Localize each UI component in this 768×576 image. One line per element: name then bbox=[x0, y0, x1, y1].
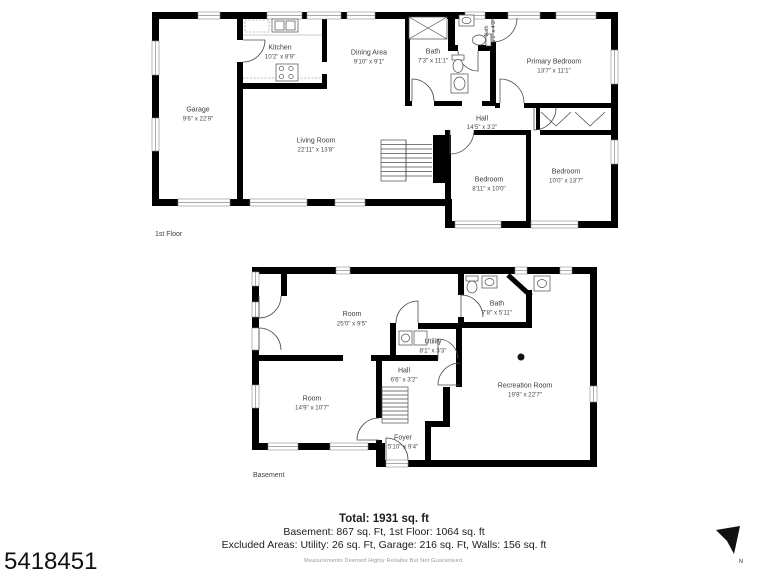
room-dims-hall: 14'5" x 3'2" bbox=[467, 124, 498, 131]
room-label-small-bath: Bath bbox=[484, 26, 490, 37]
room-dims-basement-room2: 14'9" x 10'7" bbox=[295, 405, 329, 412]
support-column bbox=[518, 354, 525, 361]
basement-label: Basement bbox=[253, 472, 285, 479]
first-floor-plan: Kitchen 10'2" x 8'9" Dining Area 9'10" x… bbox=[152, 12, 618, 238]
room-dims-dining: 9'10" x 9'1" bbox=[354, 59, 385, 66]
room-dims-rec: 19'8" x 22'7" bbox=[508, 392, 542, 399]
room-dims-basement-bath: 7'8" x 5'11" bbox=[482, 310, 512, 317]
room-label-basement-room2: Room bbox=[303, 396, 322, 403]
rec-room-sink bbox=[534, 276, 550, 291]
room-label-basement-bath: Bath bbox=[490, 301, 505, 308]
stove bbox=[276, 64, 298, 81]
room-dims-foyer: 5'10" x 9'4" bbox=[388, 444, 419, 451]
room-dims-utility: 8'1" x 3'3" bbox=[419, 348, 446, 355]
room-label-bedroom1: Bedroom bbox=[475, 177, 504, 184]
room-dims-living: 22'11" x 13'8" bbox=[298, 147, 335, 154]
room-dims-garage: 9'6" x 22'9" bbox=[183, 116, 214, 123]
room-dims-primary: 13'7" x 11'1" bbox=[537, 68, 570, 75]
room1-door-arc bbox=[396, 301, 418, 323]
basement-side-door-arc bbox=[259, 328, 281, 350]
first-floor-windows bbox=[152, 12, 618, 228]
room-dims-kitchen: 10'2" x 8'9" bbox=[265, 54, 296, 61]
room2-door-arc bbox=[357, 418, 379, 440]
basement-windows bbox=[252, 267, 597, 467]
dishwasher bbox=[245, 20, 269, 32]
room-label-bedroom2: Bedroom bbox=[552, 169, 581, 176]
summary-total: Total: 1931 sq. ft bbox=[0, 512, 768, 526]
floor-plan-drawing: Kitchen 10'2" x 8'9" Dining Area 9'10" x… bbox=[0, 0, 768, 576]
floor-plan-page: Kitchen 10'2" x 8'9" Dining Area 9'10" x… bbox=[0, 0, 768, 576]
bath-door-arc bbox=[412, 79, 434, 101]
summary-excluded: Excluded Areas: Utility: 26 sq. Ft, Gara… bbox=[0, 539, 768, 552]
room-label-basement-room1: Room bbox=[343, 311, 362, 318]
bedroom1-door-arc bbox=[450, 130, 474, 154]
room-label-garage: Garage bbox=[186, 107, 209, 114]
basement-plan: Room 25'0" x 9'5" Bath 7'8" x 5'11" Util… bbox=[252, 267, 597, 479]
room-label-bath: Bath bbox=[426, 49, 441, 56]
room-label-living: Living Room bbox=[297, 138, 336, 145]
first-floor-walls bbox=[152, 12, 618, 228]
room-dims-basement-room1: 25'0" x 9'5" bbox=[337, 321, 368, 328]
summary-disclaimer: Measurements Deemed Highly Reliable But … bbox=[0, 558, 768, 564]
summary-block: Total: 1931 sq. ft Basement: 867 sq. Ft,… bbox=[0, 512, 768, 564]
primary-bedroom-door-arc bbox=[500, 79, 524, 103]
room-label-utility: Utility bbox=[424, 339, 442, 346]
small-bath-sink bbox=[459, 15, 474, 26]
basement-bath-sink bbox=[482, 276, 497, 288]
first-floor-label: 1st Floor bbox=[155, 231, 183, 238]
basement-fixtures bbox=[382, 276, 550, 423]
basement-toilet-tank bbox=[466, 276, 478, 281]
room-label-hall: Hall bbox=[476, 116, 489, 123]
room-dims-bath: 7'3" x 11'1" bbox=[418, 58, 448, 65]
closet-bifold-door bbox=[575, 112, 605, 126]
closet-bifold-door bbox=[541, 112, 571, 126]
room-label-dining: Dining Area bbox=[351, 50, 387, 57]
washer bbox=[399, 331, 412, 345]
basement-bath-door-arc bbox=[461, 295, 483, 317]
bump-room-door-arc bbox=[259, 296, 281, 318]
room-label-rec: Recreation Room bbox=[498, 383, 553, 390]
first-floor-stairs bbox=[381, 140, 432, 181]
room-label-kitchen: Kitchen bbox=[268, 45, 291, 52]
room-dims-bedroom2: 10'0" x 13'7" bbox=[549, 178, 583, 185]
garage-kitchen-door-arc bbox=[243, 40, 265, 62]
room-dims-small-bath: 5'1" x 4'3" bbox=[491, 19, 497, 42]
listing-id: 5418451 bbox=[4, 548, 97, 576]
room-dims-basement-hall: 6'6" x 3'2" bbox=[390, 377, 417, 384]
room-dims-bedroom1: 8'11" x 10'0" bbox=[472, 186, 505, 193]
room-label-foyer: Foyer bbox=[394, 435, 413, 442]
summary-floors: Basement: 867 sq. Ft, 1st Floor: 1064 sq… bbox=[0, 526, 768, 539]
basement-doors bbox=[259, 295, 483, 460]
basement-walls bbox=[252, 267, 597, 467]
room-label-primary: Primary Bedroom bbox=[527, 59, 582, 66]
room-label-basement-hall: Hall bbox=[398, 368, 411, 375]
basement-stairs bbox=[382, 387, 408, 423]
